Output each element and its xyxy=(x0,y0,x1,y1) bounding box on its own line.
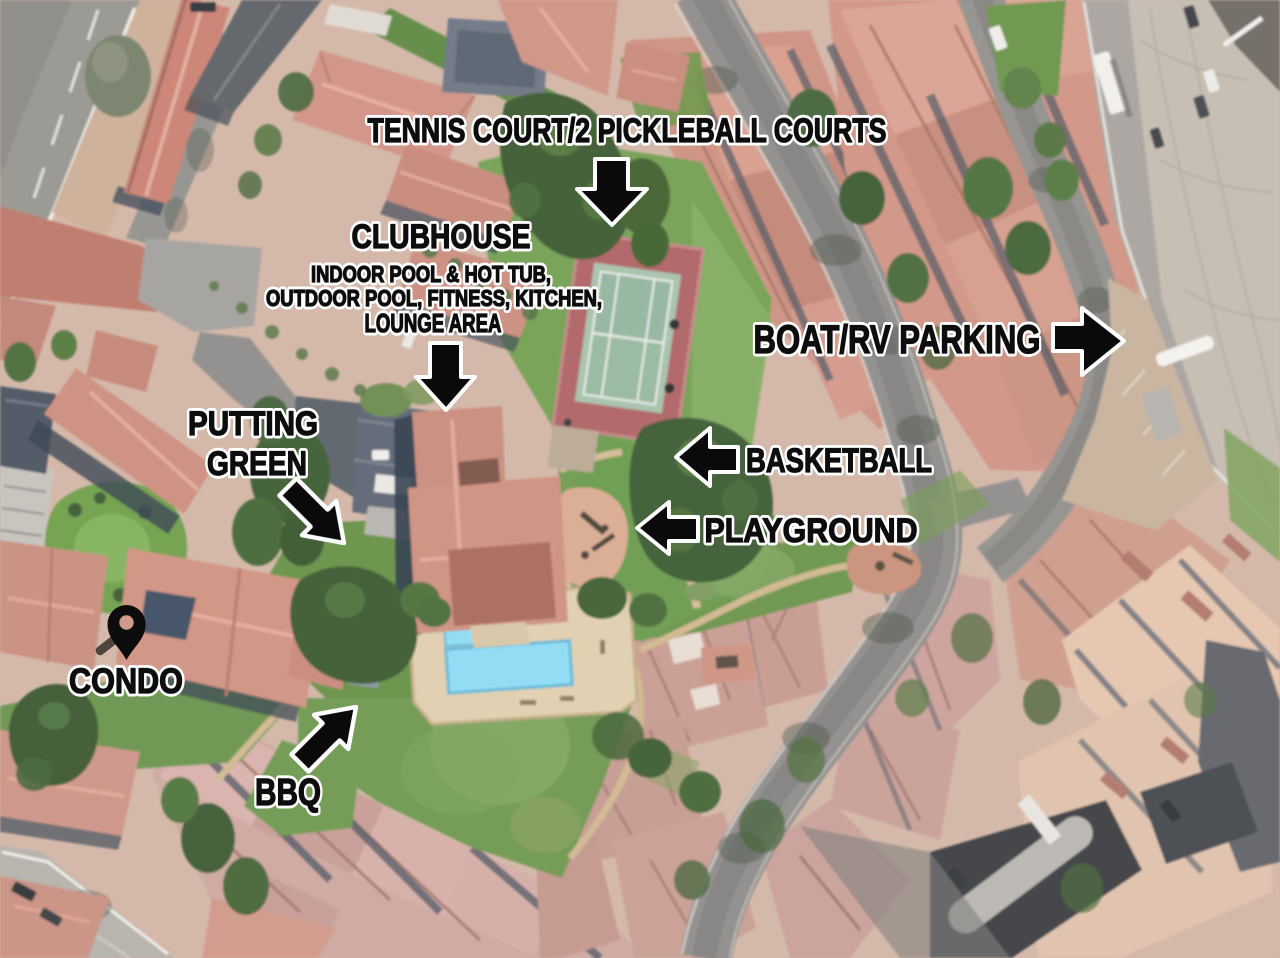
svg-text:GREEN: GREEN xyxy=(207,445,307,483)
svg-text:PUTTING: PUTTING xyxy=(188,405,318,443)
svg-text:LOUNGE AREA: LOUNGE AREA xyxy=(365,308,502,338)
svg-text:CLUBHOUSE: CLUBHOUSE xyxy=(352,218,531,256)
svg-text:BASKETBALL: BASKETBALL xyxy=(746,442,932,480)
svg-text:CONDO: CONDO xyxy=(69,662,183,701)
svg-text:BBQ: BBQ xyxy=(255,772,321,814)
svg-text:TENNIS COURT/2 PICKLEBALL COUR: TENNIS COURT/2 PICKLEBALL COURTS xyxy=(368,112,887,150)
svg-text:BOAT/RV PARKING: BOAT/RV PARKING xyxy=(754,318,1041,362)
svg-text:PLAYGROUND: PLAYGROUND xyxy=(705,512,918,550)
svg-text:INDOOR POOL & HOT TUB,: INDOOR POOL & HOT TUB, xyxy=(311,261,551,287)
